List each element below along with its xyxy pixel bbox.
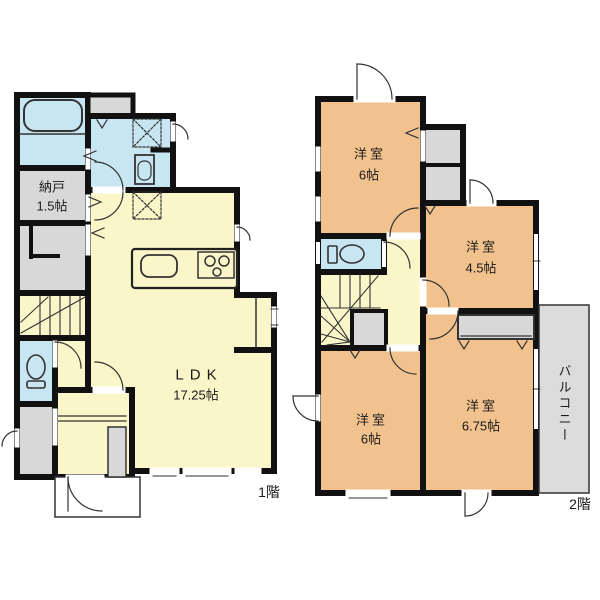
bedroom-bottom-right-name: 洋室	[466, 400, 498, 413]
floor2-plan	[293, 64, 589, 516]
floor1-plan	[2, 95, 278, 517]
floor2-label: 2階	[569, 497, 591, 511]
bedroom-bottom-left-size: 6帖	[361, 433, 381, 446]
f1-kitchen-counter	[132, 249, 237, 288]
nando-room-size: 1.5帖	[36, 200, 67, 213]
ldk-room-name: LDK	[175, 368, 222, 383]
f1-top-closet	[88, 95, 133, 116]
floor-plan-drawing	[0, 0, 600, 600]
bedroom-right-size: 4.5帖	[465, 262, 496, 275]
floor-plan-canvas: 納戸 1.5帖 LDK 17.25帖 1階 洋室 6帖 洋室 4.5帖 洋室 6…	[0, 0, 600, 600]
floor1-label: 1階	[258, 485, 280, 499]
bedroom-right-name: 洋室	[466, 241, 498, 254]
bedroom-bottom-right-size: 6.75帖	[462, 420, 500, 433]
bedroom-top-size: 6帖	[359, 169, 379, 182]
bedroom-bottom-left-name: 洋室	[356, 414, 388, 427]
f1-nando-room	[17, 168, 88, 223]
f1-shoe-cabinet	[108, 427, 126, 477]
f1-toilet	[17, 338, 55, 404]
nando-room-name: 納戸	[39, 181, 65, 194]
west-casement-arc	[293, 396, 318, 421]
f2-stair-closet	[352, 311, 386, 348]
ldk-room-size: 17.25帖	[173, 389, 219, 402]
bedroom-top-entry-arc	[357, 64, 392, 99]
bedroom-top-name: 洋室	[354, 148, 386, 161]
f1-closet3	[17, 404, 55, 477]
f2-bedroom-right	[423, 203, 536, 311]
balcony-label: バルコニー	[558, 364, 571, 444]
